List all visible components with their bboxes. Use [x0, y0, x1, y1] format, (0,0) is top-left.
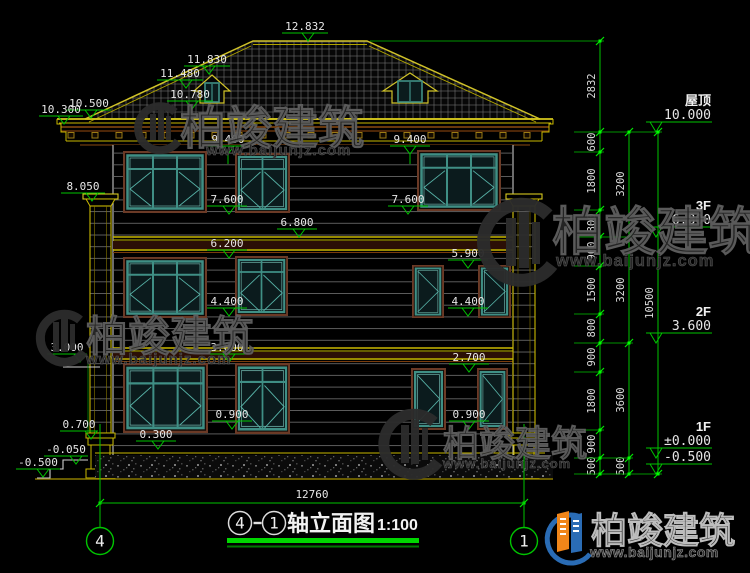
dim-chain: 10500 [644, 132, 658, 474]
elevation-value: 7.600 [391, 193, 424, 206]
elevation-value: -0.050 [46, 443, 86, 456]
logo-url-text: www.baijunjz.com [589, 544, 719, 560]
level-value: ±0.000 [664, 434, 711, 449]
elevation-value: -0.500 [18, 456, 58, 469]
level-marker: -0.500 [646, 450, 712, 474]
dim-label: 1800 [586, 168, 598, 193]
dim-label: 800 [586, 319, 598, 338]
right-level-markers: 屋顶10.0003F6.8002F3.6001F±0.000-0.500 [646, 93, 712, 474]
elevation-value: 10.300 [41, 103, 81, 116]
title-scale: 1:100 [377, 517, 418, 534]
level-name: 1F [696, 419, 711, 434]
elevation-value: 7.600 [210, 193, 243, 206]
watermark-2: 柏竣建筑 www.baijunjz.com [40, 313, 254, 368]
elevation-value: 6.800 [280, 216, 313, 229]
level-value: 3.600 [672, 319, 711, 334]
cad-elevation-screenshot: 12.83211.83011.48010.78010.50010.3009.40… [0, 0, 750, 573]
dim-label: 900 [586, 348, 598, 367]
elevation-marker: -0.500 [16, 456, 60, 477]
logo-tower-blue [571, 513, 582, 553]
watermark-url: www.baijunjz.com [555, 252, 714, 270]
window [236, 154, 289, 212]
elevation-value: 10.780 [170, 88, 210, 101]
dim-label: 3200 [615, 171, 627, 196]
dim-label: 3600 [615, 387, 627, 412]
watermark-url: www.baijunjz.com [442, 456, 571, 471]
level-marker: 屋顶10.000 [646, 93, 712, 132]
title-text: 轴立面图 [287, 511, 375, 536]
elevation-value: 11.480 [160, 67, 200, 80]
window [124, 152, 206, 212]
elevation-marker: 12.832 [282, 20, 328, 41]
level-value: -0.500 [664, 450, 711, 465]
elevation-value: 4.400 [451, 295, 484, 308]
dim-label: 10500 [644, 287, 656, 319]
company-logo: 柏竣建筑 www.baijunjz.com [547, 510, 735, 563]
dim-label: 1800 [586, 388, 598, 413]
watermark-url: www.baijunjz.com [205, 142, 351, 159]
elevation-value: 12.832 [285, 20, 325, 33]
dim-label: 1500 [586, 277, 598, 302]
dim-label: 500 [586, 457, 598, 476]
axis-bubble-4-label: 4 [95, 532, 105, 551]
axis-bubble-1-label: 1 [519, 532, 529, 551]
dim-label: 2832 [586, 73, 598, 98]
elevation-value: 6.200 [210, 237, 243, 250]
window [413, 266, 443, 317]
elevation-value: 8.050 [66, 180, 99, 193]
level-name: 屋顶 [685, 93, 711, 108]
window [124, 258, 206, 317]
drawing-title: 4 1 轴立面图 1:100 [227, 511, 419, 547]
dim-label: 3200 [615, 277, 627, 302]
title-bubble-left: 4 [235, 514, 245, 533]
elevation-marker: 10.300 [39, 103, 83, 124]
overall-width-dim: 12760 [295, 488, 328, 501]
elevation-value: 0.900 [452, 408, 485, 421]
elevation-value: 2.700 [452, 351, 485, 364]
window [236, 257, 287, 315]
window [124, 364, 207, 432]
level-name: 2F [696, 304, 711, 319]
watermark-url: www.baijunjz.com [85, 351, 231, 368]
title-bubble-right: 1 [269, 514, 279, 533]
elevation-value: 11.830 [187, 53, 227, 66]
window [418, 151, 500, 210]
logo-tower-orange [557, 511, 569, 552]
window [236, 364, 289, 433]
elevation-value: 0.700 [62, 418, 95, 431]
title-underline [227, 538, 419, 543]
elevation-value: 9.400 [393, 133, 426, 146]
dim-chain: 320032003600500 [615, 132, 629, 475]
dim-label: 500 [615, 457, 627, 476]
dim-label: 900 [586, 435, 598, 454]
level-value: 10.000 [664, 108, 711, 123]
elevation-value: 0.300 [139, 428, 172, 441]
elevation-drawing: 12.83211.83011.48010.78010.50010.3009.40… [0, 0, 750, 573]
elevation-value: 4.400 [210, 295, 243, 308]
elevation-value: 0.900 [215, 408, 248, 421]
